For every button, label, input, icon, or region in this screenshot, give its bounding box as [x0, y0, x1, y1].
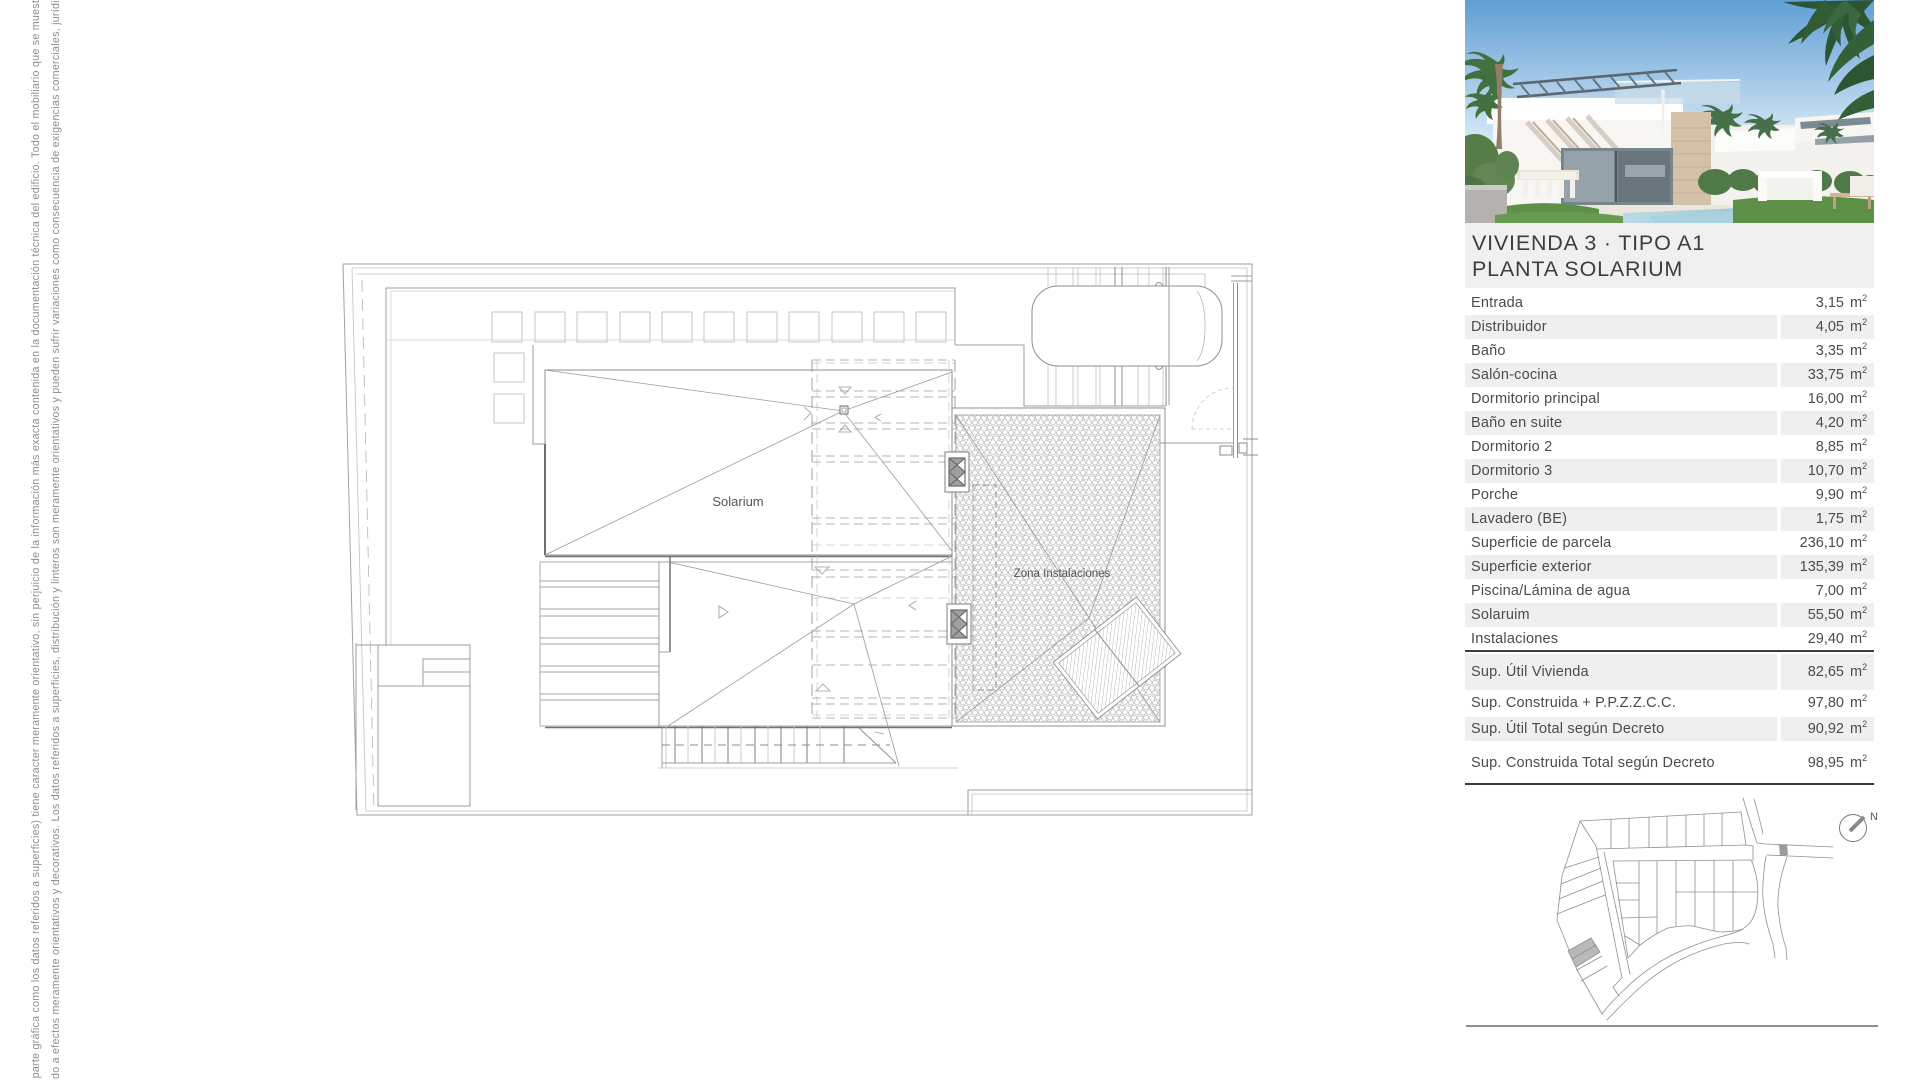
- svg-text:N: N: [1870, 811, 1878, 823]
- svg-text:Zona Instalaciones: Zona Instalaciones: [1014, 568, 1111, 580]
- svg-text:Solarium: Solarium: [712, 494, 763, 509]
